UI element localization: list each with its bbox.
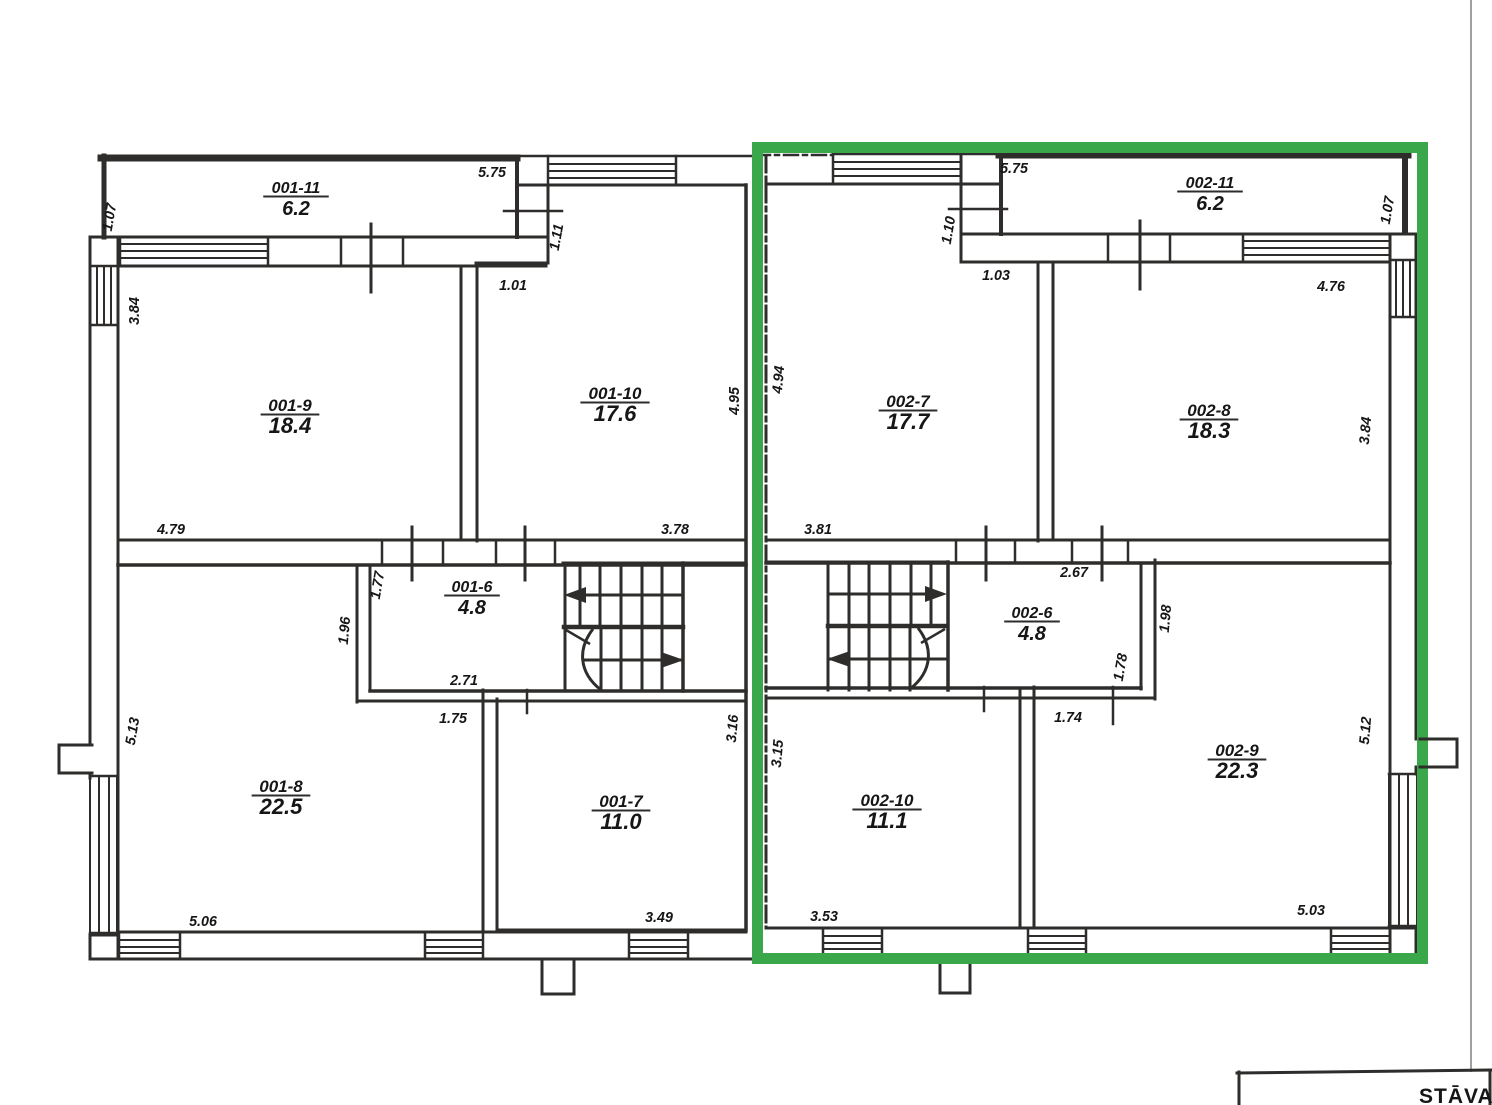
svg-text:22.5: 22.5 <box>259 794 304 819</box>
svg-text:1.74: 1.74 <box>1054 710 1082 726</box>
svg-text:11.0: 11.0 <box>600 809 642 834</box>
svg-text:22.3: 22.3 <box>1215 758 1259 783</box>
svg-text:002-6: 002-6 <box>1012 605 1053 622</box>
svg-text:3.81: 3.81 <box>804 522 832 538</box>
svg-text:5.03: 5.03 <box>1297 903 1325 919</box>
svg-text:1.03: 1.03 <box>982 268 1010 284</box>
svg-text:3.84: 3.84 <box>1357 416 1375 445</box>
svg-text:2.67: 2.67 <box>1059 565 1089 581</box>
svg-text:3.53: 3.53 <box>810 909 838 925</box>
svg-text:4.8: 4.8 <box>457 597 487 619</box>
svg-text:3.78: 3.78 <box>661 522 689 538</box>
svg-text:1.75: 1.75 <box>439 711 468 727</box>
svg-text:1.96: 1.96 <box>336 615 354 645</box>
svg-text:11.1: 11.1 <box>866 808 907 833</box>
svg-text:5.06: 5.06 <box>189 914 218 930</box>
svg-text:4.76: 4.76 <box>1316 279 1346 295</box>
svg-text:17.6: 17.6 <box>594 401 638 426</box>
svg-text:3.84: 3.84 <box>127 297 143 325</box>
svg-text:3.49: 3.49 <box>645 910 673 926</box>
svg-text:6.2: 6.2 <box>1196 193 1224 215</box>
svg-text:4.8: 4.8 <box>1017 623 1047 645</box>
svg-text:1.98: 1.98 <box>1157 604 1175 633</box>
svg-text:1.01: 1.01 <box>499 278 527 294</box>
svg-text:5.75: 5.75 <box>1000 161 1029 177</box>
svg-text:3.16: 3.16 <box>724 713 742 743</box>
svg-text:17.7: 17.7 <box>887 409 932 434</box>
svg-text:3.15: 3.15 <box>769 738 787 768</box>
svg-text:18.3: 18.3 <box>1188 418 1231 443</box>
svg-text:18.4: 18.4 <box>269 413 312 438</box>
svg-text:4.94: 4.94 <box>770 365 788 395</box>
svg-text:STĀVA: STĀVA <box>1419 1085 1492 1105</box>
svg-text:5.75: 5.75 <box>478 165 507 181</box>
svg-text:6.2: 6.2 <box>282 198 310 220</box>
svg-text:5.12: 5.12 <box>1357 716 1375 745</box>
svg-text:001-11: 001-11 <box>272 180 321 197</box>
svg-text:2.71: 2.71 <box>449 673 478 689</box>
svg-text:002-11: 002-11 <box>1186 175 1235 192</box>
svg-text:4.79: 4.79 <box>156 522 185 538</box>
svg-text:001-6: 001-6 <box>452 579 493 596</box>
svg-text:4.95: 4.95 <box>727 386 743 416</box>
